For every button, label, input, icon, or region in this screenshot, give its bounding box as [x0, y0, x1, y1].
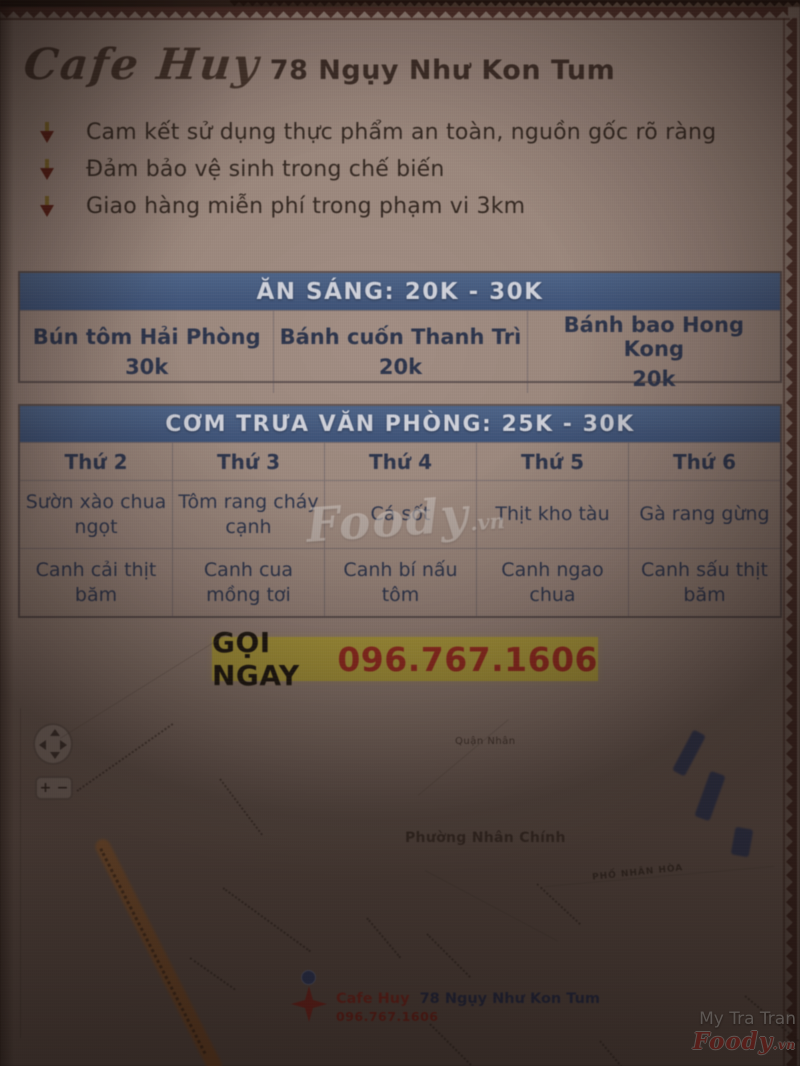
location-marker-icon — [291, 986, 327, 1022]
commitments-list: Cam kết sử dụng thực phẩm an toàn, nguồn… — [38, 120, 768, 231]
day-header: Thứ 5 — [476, 442, 628, 480]
brand-name: Cafe Huy — [21, 40, 262, 90]
map-pan-control — [33, 723, 73, 765]
pan-down-icon — [50, 752, 60, 759]
marker-label: Cafe Huy 78 Ngụy Như Kon Tum — [336, 991, 600, 1007]
marker-address: 78 Ngụy Như Kon Tum — [420, 991, 600, 1007]
dish-price: 30k — [125, 355, 168, 379]
menu-paper: Cafe Huy 78 Ngụy Như Kon Tum Cam kết sử … — [0, 0, 800, 1066]
map-border — [20, 708, 21, 1038]
street-line — [60, 632, 230, 739]
table-cell: Canh cua mồng tơi — [172, 548, 324, 616]
table-cell: Canh cải thịt băm — [20, 548, 172, 616]
street-line — [222, 887, 311, 952]
pan-up-icon — [50, 729, 60, 736]
breakfast-table-title: ĂN SÁNG: 20K - 30K — [20, 273, 780, 310]
day-header: Thứ 6 — [628, 442, 780, 480]
dish-price: 20k — [632, 367, 675, 391]
list-item: Giao hàng miễn phí trong phạm vi 3km — [38, 194, 768, 219]
table-cell: Gà rang gừng — [628, 480, 780, 548]
foody-logo: Foody.vn — [686, 1029, 796, 1054]
breakfast-row: Bún tôm Hải Phòng 30k Bánh cuốn Thanh Tr… — [20, 310, 780, 381]
commitment-text: Giao hàng miễn phí trong phạm vi 3km — [86, 194, 525, 219]
day-header: Thứ 2 — [20, 442, 172, 480]
border-line — [0, 18, 790, 20]
street-line — [425, 870, 558, 941]
map-building — [672, 729, 706, 776]
day-header: Thứ 4 — [324, 442, 476, 480]
dish-name: Bánh bao Hong Kong — [532, 313, 776, 361]
phone-number: 096.767.1606 — [337, 640, 598, 679]
commitment-text: Đảm bảo vệ sinh trong chế biến — [86, 157, 445, 182]
foody-watermark-text: Foody — [304, 488, 471, 554]
down-arrow-bullet-icon — [38, 121, 56, 145]
zoom-out-icon: − — [57, 780, 69, 796]
street-label: PHỐ NHÂN HÒA — [592, 863, 684, 883]
brand-address: 78 Ngụy Như Kon Tum — [270, 55, 615, 86]
street-line — [536, 883, 581, 925]
street-line — [219, 778, 263, 835]
menu-photo: Cafe Huy 78 Ngụy Như Kon Tum Cam kết sử … — [0, 0, 800, 1066]
table-cell: Canh ngao chua — [476, 548, 628, 616]
marker-phone: 096.767.1606 — [336, 1009, 438, 1024]
street-line — [366, 917, 401, 958]
district-label: Quận Nhân — [455, 736, 516, 747]
table-cell: Canh bí nấu tôm — [324, 548, 476, 616]
foody-watermark-tld: .vn — [469, 508, 505, 535]
border-zigzag — [230, 0, 800, 6]
dish-name: Bún tôm Hải Phòng — [33, 325, 261, 349]
lunch-days-row: Thứ 2 Thứ 3 Thứ 4 Thứ 5 Thứ 6 — [20, 442, 780, 480]
credit-watermark: My Tra Tran Foody.vn — [686, 1010, 796, 1054]
down-arrow-bullet-icon — [38, 158, 56, 182]
table-cell: Bánh bao Hong Kong 20k — [527, 310, 780, 393]
location-map: + − Quận Nhân Phường Nhân Chí — [0, 698, 800, 1066]
paper-left-edge — [0, 0, 14, 1066]
street-line — [418, 719, 509, 796]
zoom-in-icon: + — [40, 780, 52, 796]
pan-left-icon — [39, 740, 46, 750]
map-zoom-control: + − — [35, 776, 73, 800]
table-cell: Canh sấu thịt băm — [628, 548, 780, 616]
street-line — [426, 933, 471, 978]
ward-label: Phường Nhân Chính — [405, 830, 566, 846]
pan-right-icon — [60, 740, 67, 750]
foody-logo-text: Foody — [693, 1028, 773, 1055]
marker-brand: Cafe Huy — [336, 991, 410, 1007]
street-line — [189, 957, 235, 990]
foody-logo-tld: .vn — [773, 1038, 796, 1052]
dish-price: 20k — [379, 355, 422, 379]
page-title: Cafe Huy 78 Ngụy Như Kon Tum — [24, 40, 764, 90]
breakfast-table: ĂN SÁNG: 20K - 30K Bún tôm Hải Phòng 30k… — [18, 271, 782, 383]
table-cell: Tôm rang cháy cạnh — [172, 480, 324, 548]
table-cell: Bún tôm Hải Phòng 30k — [20, 310, 273, 393]
border-triangle-garland — [0, 7, 788, 18]
commitment-text: Cam kết sử dụng thực phẩm an toàn, nguồn… — [86, 120, 716, 145]
table-cell: Sườn xào chua ngọt — [20, 480, 172, 548]
call-now-label: GỌI NGAY — [212, 626, 325, 692]
day-header: Thứ 3 — [172, 442, 324, 480]
border-triangle-garland — [786, 18, 797, 1066]
call-now-banner: GỌI NGAY 096.767.1606 — [212, 637, 598, 681]
road-name-line — [99, 847, 209, 1055]
map-building — [694, 771, 725, 822]
list-item: Đảm bảo vệ sinh trong chế biến — [38, 157, 768, 182]
list-item: Cam kết sử dụng thực phẩm an toàn, nguồn… — [38, 120, 768, 145]
border-line — [783, 18, 785, 1066]
down-arrow-bullet-icon — [38, 195, 56, 219]
credit-author: My Tra Tran — [686, 1010, 796, 1029]
lunch-soups-row: Canh cải thịt băm Canh cua mồng tơi Canh… — [20, 548, 780, 616]
table-cell: Bánh cuốn Thanh Trì 20k — [273, 310, 526, 393]
street-line — [76, 723, 173, 792]
street-line — [599, 1040, 646, 1066]
lunch-table-title: CƠM TRƯA VĂN PHÒNG: 25K - 30K — [20, 406, 780, 442]
map-building — [731, 827, 754, 858]
dish-name: Bánh cuốn Thanh Trì — [280, 325, 522, 349]
poi-dot-icon — [301, 970, 316, 985]
street-line — [429, 1023, 480, 1066]
